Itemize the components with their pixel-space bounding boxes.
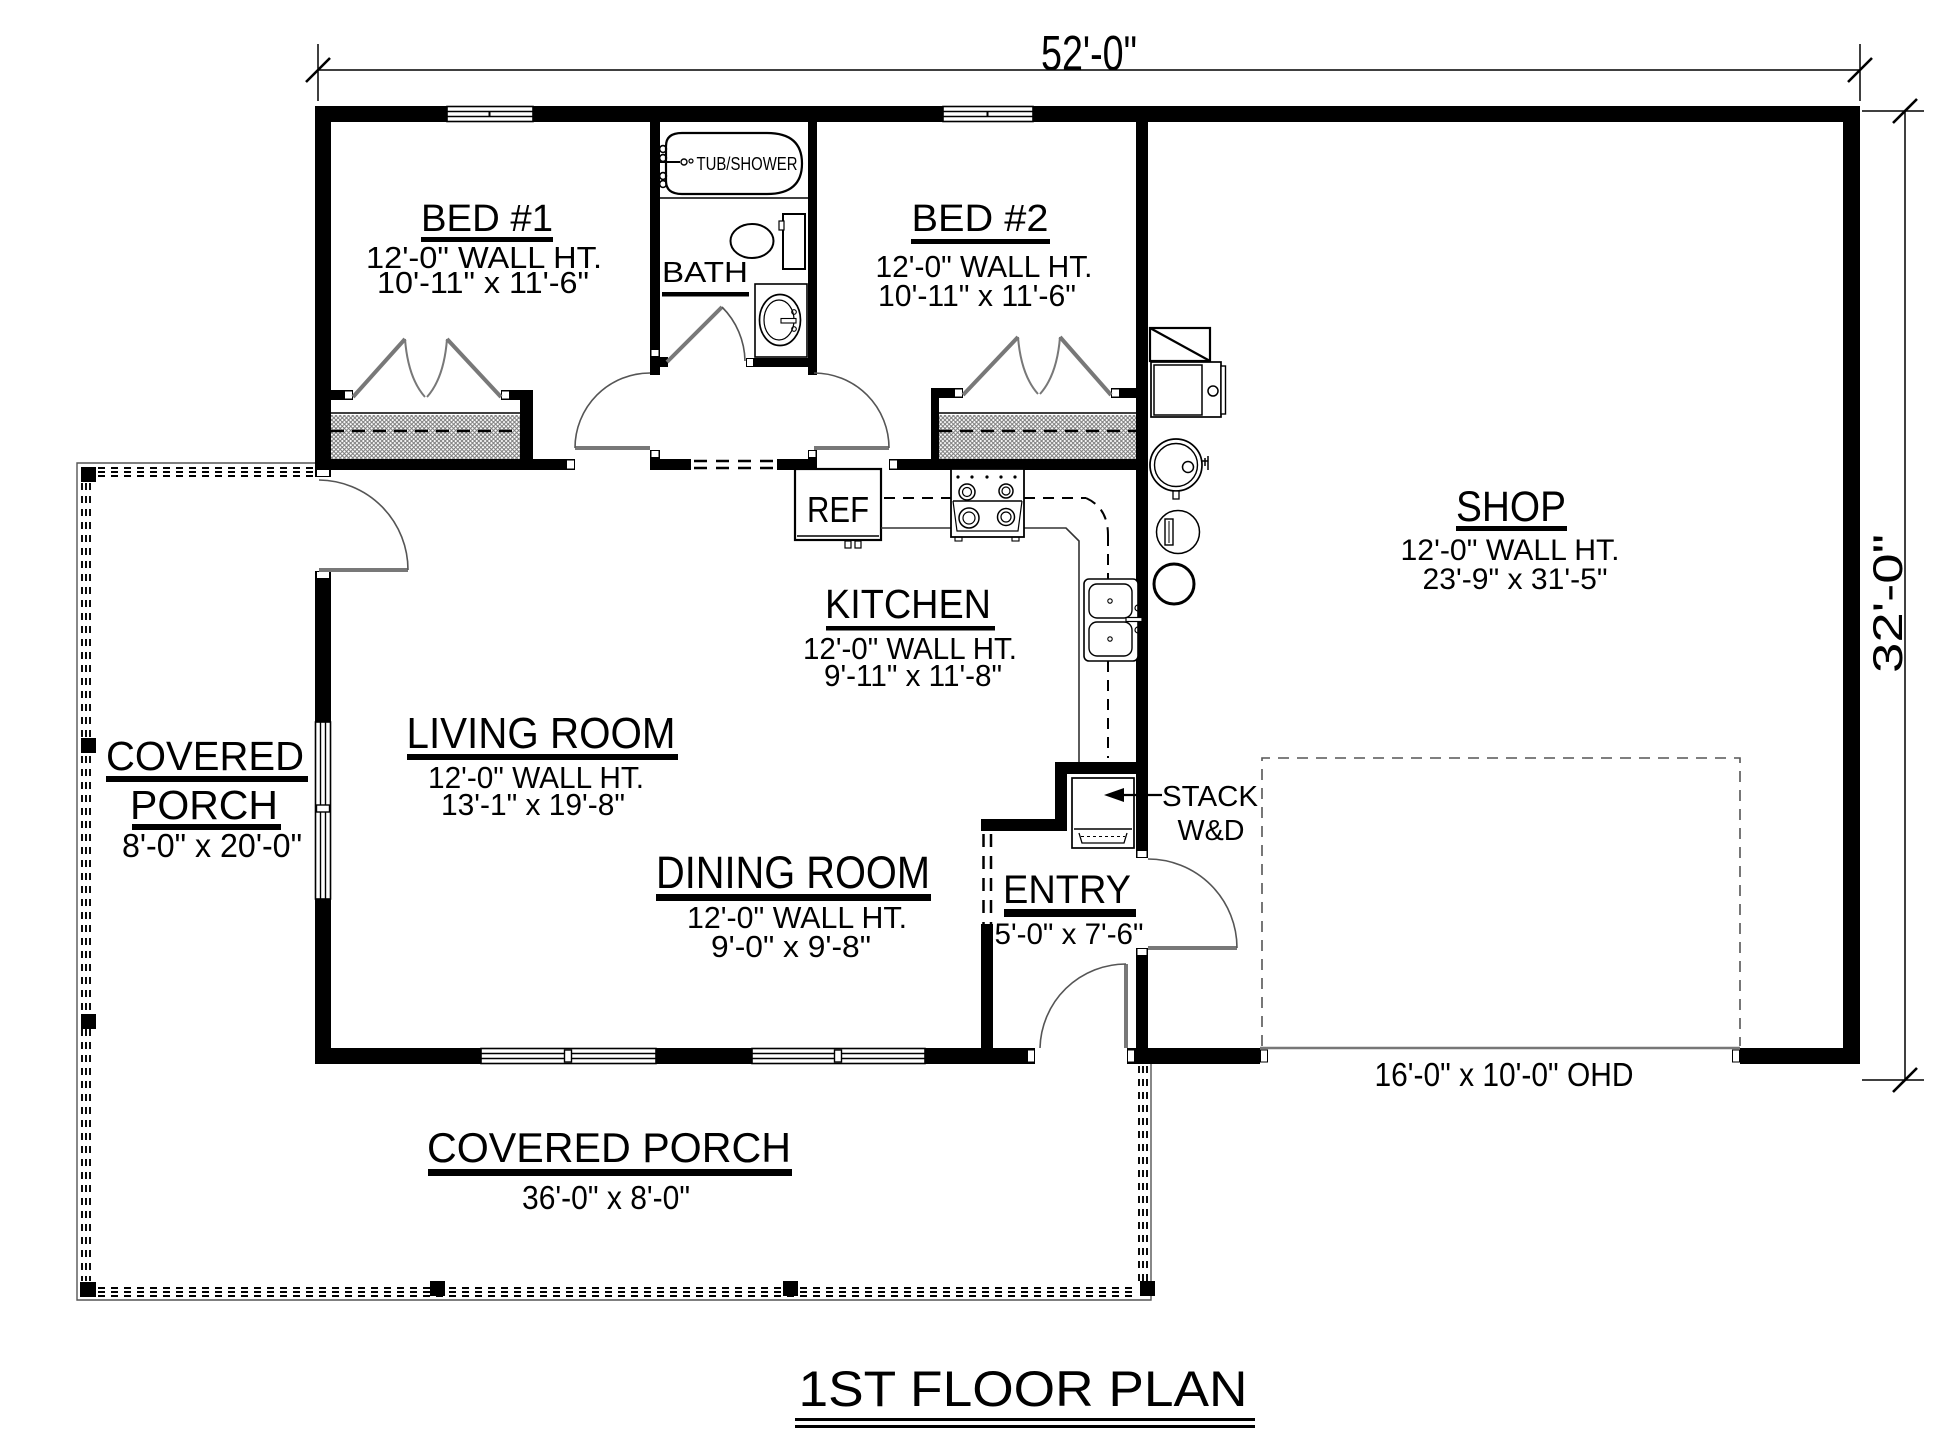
svg-text:13'-1" x 19'-8": 13'-1" x 19'-8" — [441, 787, 625, 822]
svg-text:23'-9" x 31'-5": 23'-9" x 31'-5" — [1423, 563, 1608, 596]
svg-text:5'-0" x 7'-6": 5'-0" x 7'-6" — [995, 918, 1144, 951]
svg-text:BED #2: BED #2 — [912, 198, 1049, 240]
svg-text:BATH: BATH — [662, 257, 748, 289]
svg-text:COVERED PORCH: COVERED PORCH — [427, 1124, 791, 1171]
svg-text:LIVING ROOM: LIVING ROOM — [407, 709, 676, 758]
svg-text:1ST FLOOR PLAN: 1ST FLOOR PLAN — [799, 1361, 1248, 1417]
svg-text:KITCHEN: KITCHEN — [825, 581, 991, 627]
svg-text:9'-11" x 11'-8": 9'-11" x 11'-8" — [824, 658, 1002, 693]
svg-text:STACK: STACK — [1162, 781, 1259, 813]
svg-text:9'-0" x 9'-8": 9'-0" x 9'-8" — [711, 929, 871, 964]
svg-text:10'-11" x 11'-6": 10'-11" x 11'-6" — [878, 278, 1076, 313]
svg-text:16'-0" x 10'-0" OHD: 16'-0" x 10'-0" OHD — [1375, 1056, 1634, 1093]
svg-text:32'-0": 32'-0" — [1864, 534, 1911, 673]
svg-text:36'-0" x 8'-0": 36'-0" x 8'-0" — [522, 1179, 690, 1216]
svg-text:BED #1: BED #1 — [421, 198, 553, 240]
svg-text:SHOP: SHOP — [1456, 483, 1566, 531]
svg-text:W&D: W&D — [1178, 815, 1245, 847]
svg-text:REF: REF — [807, 489, 869, 530]
svg-text:PORCH: PORCH — [130, 782, 278, 828]
svg-text:ENTRY: ENTRY — [1003, 868, 1131, 912]
svg-text:COVERED: COVERED — [106, 733, 304, 779]
svg-text:52'-0": 52'-0" — [1041, 27, 1137, 81]
svg-text:TUB/SHOWER: TUB/SHOWER — [697, 154, 798, 174]
svg-text:10'-11" x 11'-6": 10'-11" x 11'-6" — [377, 265, 589, 300]
svg-text:8'-0" x 20'-0": 8'-0" x 20'-0" — [122, 827, 302, 864]
svg-text:DINING ROOM: DINING ROOM — [656, 847, 930, 898]
